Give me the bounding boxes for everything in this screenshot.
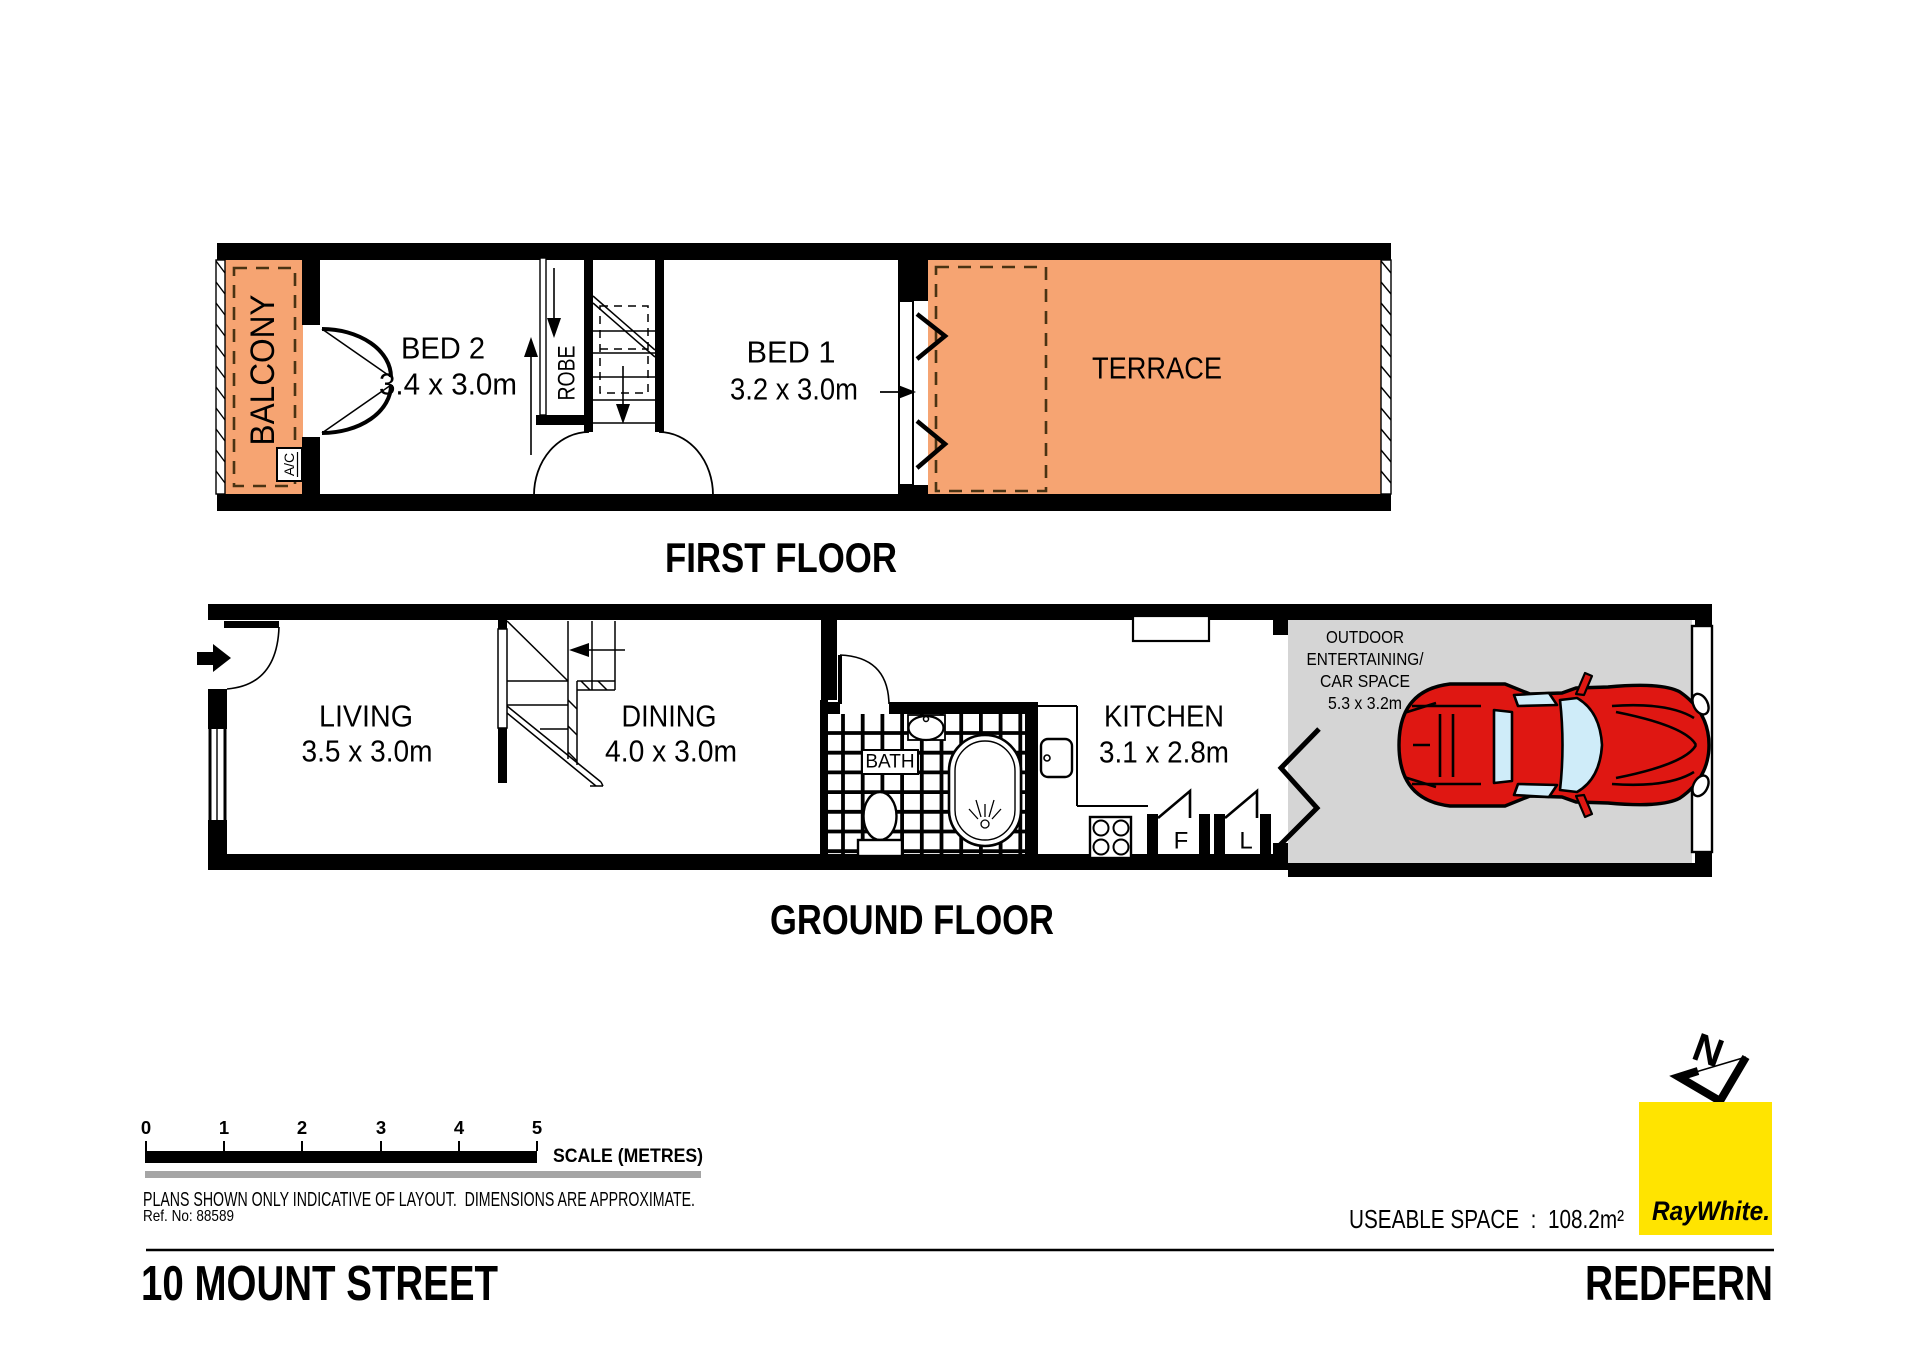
svg-text:FIRST FLOOR: FIRST FLOOR — [665, 534, 897, 581]
svg-text:3.4 x 3.0m: 3.4 x 3.0m — [379, 367, 517, 402]
svg-text:CAR SPACE: CAR SPACE — [1320, 671, 1410, 691]
svg-text:BED 1: BED 1 — [747, 335, 836, 370]
svg-text:2: 2 — [297, 1117, 307, 1138]
svg-text:ROBE: ROBE — [554, 346, 581, 401]
svg-text:GROUND FLOOR: GROUND FLOOR — [770, 896, 1054, 943]
svg-text:LIVING: LIVING — [319, 699, 413, 734]
svg-text:KITCHEN: KITCHEN — [1104, 699, 1224, 734]
svg-text:DINING: DINING — [622, 699, 717, 734]
svg-text:1: 1 — [219, 1117, 229, 1138]
svg-text:L: L — [1239, 828, 1252, 855]
svg-text:5: 5 — [532, 1117, 542, 1138]
svg-text:3.5 x 3.0m: 3.5 x 3.0m — [302, 734, 433, 769]
svg-text:BATH: BATH — [865, 752, 914, 773]
svg-text:3.1 x 2.8m: 3.1 x 2.8m — [1099, 735, 1229, 770]
svg-text:TERRACE: TERRACE — [1092, 351, 1222, 386]
svg-text:REDFERN: REDFERN — [1585, 1257, 1773, 1311]
svg-text:5.3 x 3.2m: 5.3 x 3.2m — [1328, 693, 1402, 713]
svg-text:F: F — [1174, 828, 1189, 855]
svg-text:ENTERTAINING/: ENTERTAINING/ — [1307, 649, 1424, 669]
svg-text:SCALE (METRES): SCALE (METRES) — [553, 1146, 703, 1167]
svg-text:RayWhite.: RayWhite. — [1652, 1196, 1770, 1226]
svg-text:BALCONY: BALCONY — [244, 295, 282, 446]
svg-text:0: 0 — [141, 1117, 151, 1138]
svg-text:BED 2: BED 2 — [401, 331, 485, 366]
svg-text:Ref. No: 88589: Ref. No: 88589 — [143, 1208, 234, 1225]
svg-text:OUTDOOR: OUTDOOR — [1326, 627, 1404, 647]
svg-text:USEABLE SPACE : 108.2m²: USEABLE SPACE : 108.2m² — [1349, 1204, 1624, 1234]
svg-text:3.2 x 3.0m: 3.2 x 3.0m — [730, 372, 858, 407]
svg-text:A/C: A/C — [281, 453, 297, 476]
svg-text:10 MOUNT STREET: 10 MOUNT STREET — [141, 1257, 498, 1311]
svg-text:4.0 x 3.0m: 4.0 x 3.0m — [605, 734, 737, 769]
svg-text:3: 3 — [376, 1117, 386, 1138]
svg-text:4: 4 — [454, 1117, 465, 1138]
